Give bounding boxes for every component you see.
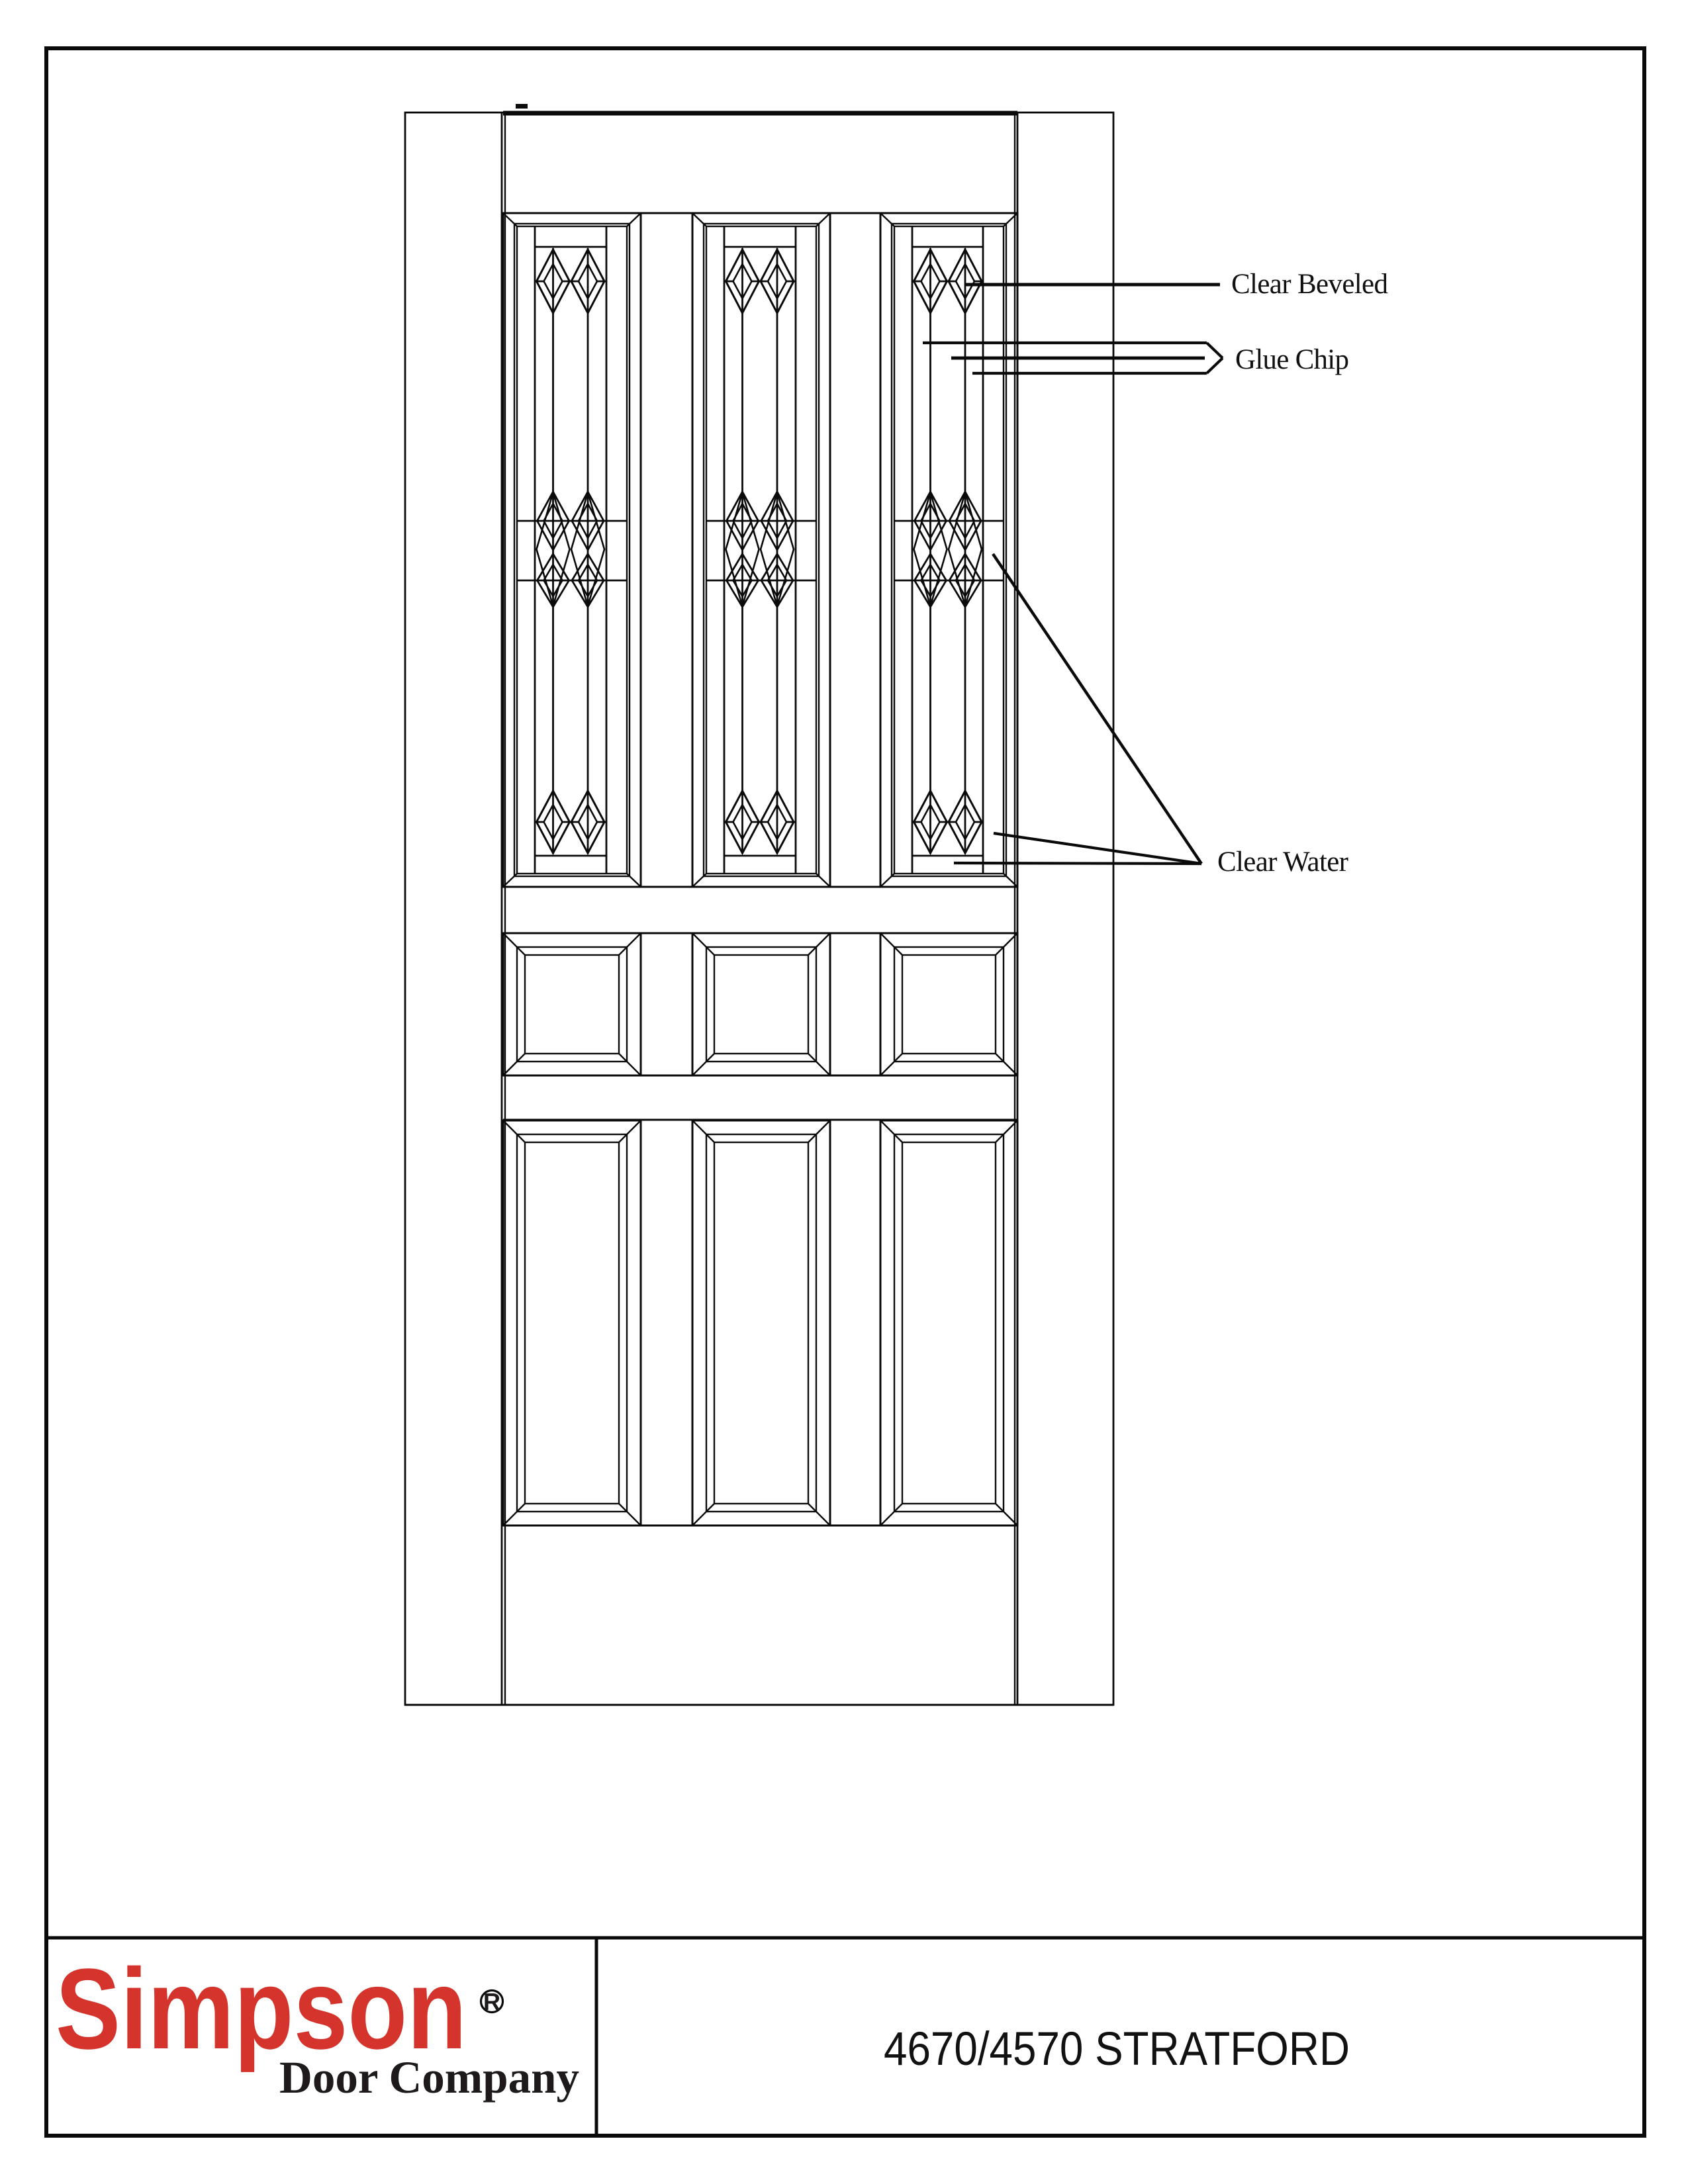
svg-text:R: R <box>483 1988 500 2015</box>
svg-text:Clear Water: Clear Water <box>1217 846 1348 878</box>
svg-text:4670/4570 STRATFORD: 4670/4570 STRATFORD <box>884 2023 1350 2075</box>
svg-text:Door Company: Door Company <box>279 2052 579 2103</box>
svg-text:Glue Chip: Glue Chip <box>1235 344 1349 375</box>
svg-text:Clear Beveled: Clear Beveled <box>1231 269 1388 300</box>
